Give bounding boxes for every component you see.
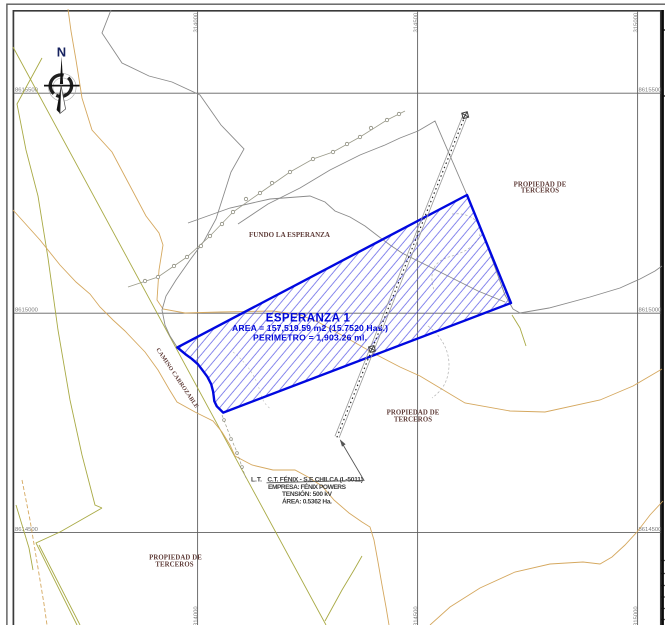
svg-text:PERIMETRO = 1,903.26 ml.: PERIMETRO = 1,903.26 ml. [253, 333, 367, 343]
svg-text:8614500: 8614500 [15, 527, 39, 533]
svg-text:8615500: 8615500 [639, 88, 663, 94]
svg-text:314000: 314000 [193, 12, 199, 32]
svg-text:AREA = 157,519.59 m2 (15.7520: AREA = 157,519.59 m2 (15.7520 Has.) [232, 323, 388, 333]
svg-text:315000: 315000 [633, 12, 639, 32]
svg-text:314000: 314000 [193, 606, 199, 625]
svg-text:C.T. FÉNIX - S.E CHILCA (L-501: C.T. FÉNIX - S.E CHILCA (L-5011) [267, 474, 363, 483]
svg-text:FUNDO LA ESPERANZA: FUNDO LA ESPERANZA [249, 231, 330, 239]
svg-text:315000: 315000 [633, 606, 639, 625]
svg-text:TERCEROS: TERCEROS [155, 561, 193, 568]
svg-text:TERCEROS: TERCEROS [521, 187, 559, 194]
svg-text:ÁREA: 0.5362 Ha.: ÁREA: 0.5362 Ha. [282, 497, 332, 506]
svg-text:TERCEROS: TERCEROS [394, 416, 432, 423]
svg-text:TENSIÓN: 500 kV: TENSIÓN: 500 kV [282, 489, 333, 498]
svg-text:L.T.: L.T. [251, 476, 262, 483]
svg-text:8615000: 8615000 [639, 308, 663, 314]
svg-text:314500: 314500 [413, 606, 419, 625]
svg-text:N: N [57, 45, 66, 60]
svg-text:8615000: 8615000 [15, 308, 39, 314]
svg-text:EMPRESA: FÉNIX POWERS: EMPRESA: FÉNIX POWERS [268, 482, 347, 491]
svg-text:8614500: 8614500 [639, 527, 663, 533]
svg-text:314500: 314500 [413, 12, 419, 32]
